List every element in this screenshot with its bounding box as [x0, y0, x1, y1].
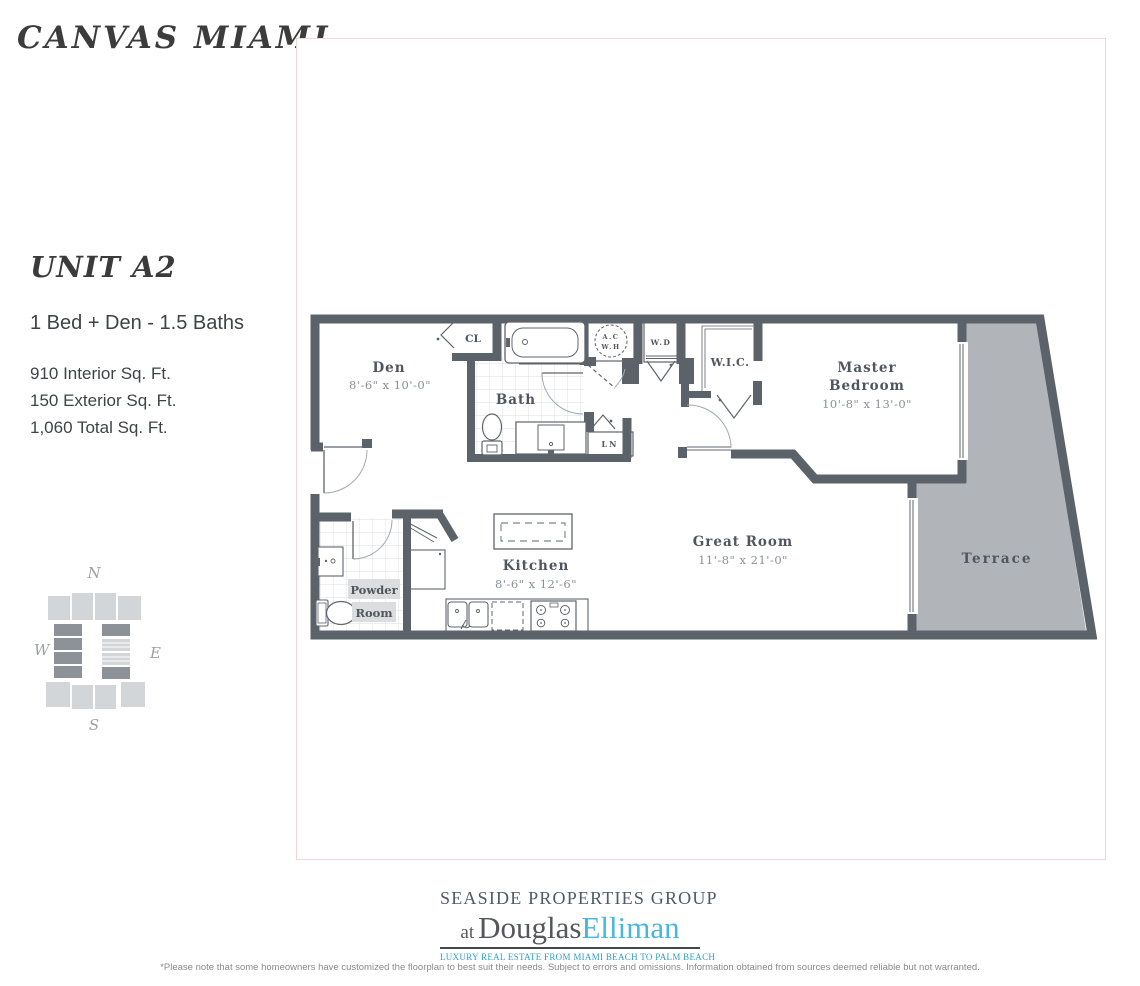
logo-elliman: Elliman — [581, 910, 679, 946]
ac-label: A.C — [602, 333, 620, 341]
master-sliding-door — [956, 342, 968, 460]
acwh-door — [588, 365, 625, 388]
greatroom-sliding-door — [906, 498, 918, 614]
bathtub-icon — [505, 322, 585, 363]
wic-door — [717, 395, 751, 418]
dishwasher-icon — [492, 602, 523, 630]
powder-toilet-icon — [316, 600, 356, 626]
closet-door — [437, 322, 454, 348]
compass-south-label: S — [89, 716, 99, 734]
disclaimer-text: *Please note that some homeowners have c… — [0, 962, 1140, 973]
logo-douglas: Douglas — [478, 910, 581, 946]
wd-label: W.D — [650, 338, 672, 347]
entry-door — [324, 447, 367, 493]
den-label: Den — [372, 360, 405, 376]
stove-icon — [531, 601, 576, 631]
powder-label-2: Room — [355, 606, 392, 620]
master-dims: 10'-8" x 13'-0" — [822, 397, 912, 411]
bath-toilet-icon — [482, 414, 502, 455]
powder-label-1: Powder — [350, 583, 398, 597]
total-sqft: 1,060 Total Sq. Ft. — [30, 414, 176, 441]
powder-sink-icon — [315, 547, 343, 576]
kitchen-island — [494, 514, 572, 549]
terrace-label: Terrace — [962, 551, 1033, 567]
den-dims: 8'-6" x 10'-0" — [349, 378, 431, 392]
brokerage-name: SEASIDE PROPERTIES GROUP — [440, 888, 700, 909]
douglas-elliman-logo: at Douglas Elliman — [440, 910, 700, 946]
compass-west-label: W — [34, 641, 51, 659]
logo-at: at — [460, 922, 474, 944]
floorplan-sheet: CANVAS MIAMI UNIT A2 1 Bed + Den - 1.5 B… — [0, 0, 1140, 986]
greatroom-dims: 11'-8" x 21'-0" — [698, 553, 788, 567]
master-label-1: Master — [837, 360, 896, 376]
keyplan-building — [46, 593, 145, 709]
floor-plan: Den 8'-6" x 10'-0" CL Bath A.C W.H W.D W… — [307, 311, 1097, 651]
interior-sqft: 910 Interior Sq. Ft. — [30, 360, 176, 387]
page-title: CANVAS MIAMI — [17, 20, 331, 56]
master-label-2: Bedroom — [829, 378, 905, 394]
compass-keyplan: N W E S — [28, 560, 168, 740]
vanity-sink-icon — [516, 422, 586, 454]
unit-name: UNIT A2 — [30, 250, 177, 284]
linen-door — [591, 415, 615, 429]
exterior-sqft: 150 Exterior Sq. Ft. — [30, 387, 176, 414]
logo-tagline: LUXURY REAL ESTATE FROM MIAMI BEACH TO P… — [440, 952, 700, 962]
kitchen-sink-icon — [448, 602, 488, 629]
kitchen-dims: 8'-6" x 12'-6" — [495, 577, 577, 591]
cl-label: CL — [465, 333, 481, 345]
greatroom-label: Great Room — [693, 534, 793, 550]
wh-label: W.H — [600, 343, 620, 351]
wic-label: W.I.C. — [710, 356, 750, 369]
master-door — [687, 405, 731, 450]
bath-label: Bath — [496, 392, 536, 408]
unit-areas: 910 Interior Sq. Ft. 150 Exterior Sq. Ft… — [30, 360, 176, 441]
unit-layout: 1 Bed + Den - 1.5 Baths — [30, 312, 244, 335]
compass-north-label: N — [86, 564, 101, 582]
refrigerator-icon — [408, 550, 445, 589]
compass-east-label: E — [149, 644, 161, 662]
plan-frame: Den 8'-6" x 10'-0" CL Bath A.C W.H W.D W… — [296, 38, 1106, 860]
logo-rule — [440, 947, 700, 949]
kitchen-label: Kitchen — [503, 558, 570, 574]
ln-label: LN — [602, 439, 619, 449]
washer-dryer-door — [647, 361, 675, 381]
ac-wh-unit-icon — [588, 321, 634, 361]
brokerage-logo: SEASIDE PROPERTIES GROUP at Douglas Elli… — [440, 888, 700, 962]
